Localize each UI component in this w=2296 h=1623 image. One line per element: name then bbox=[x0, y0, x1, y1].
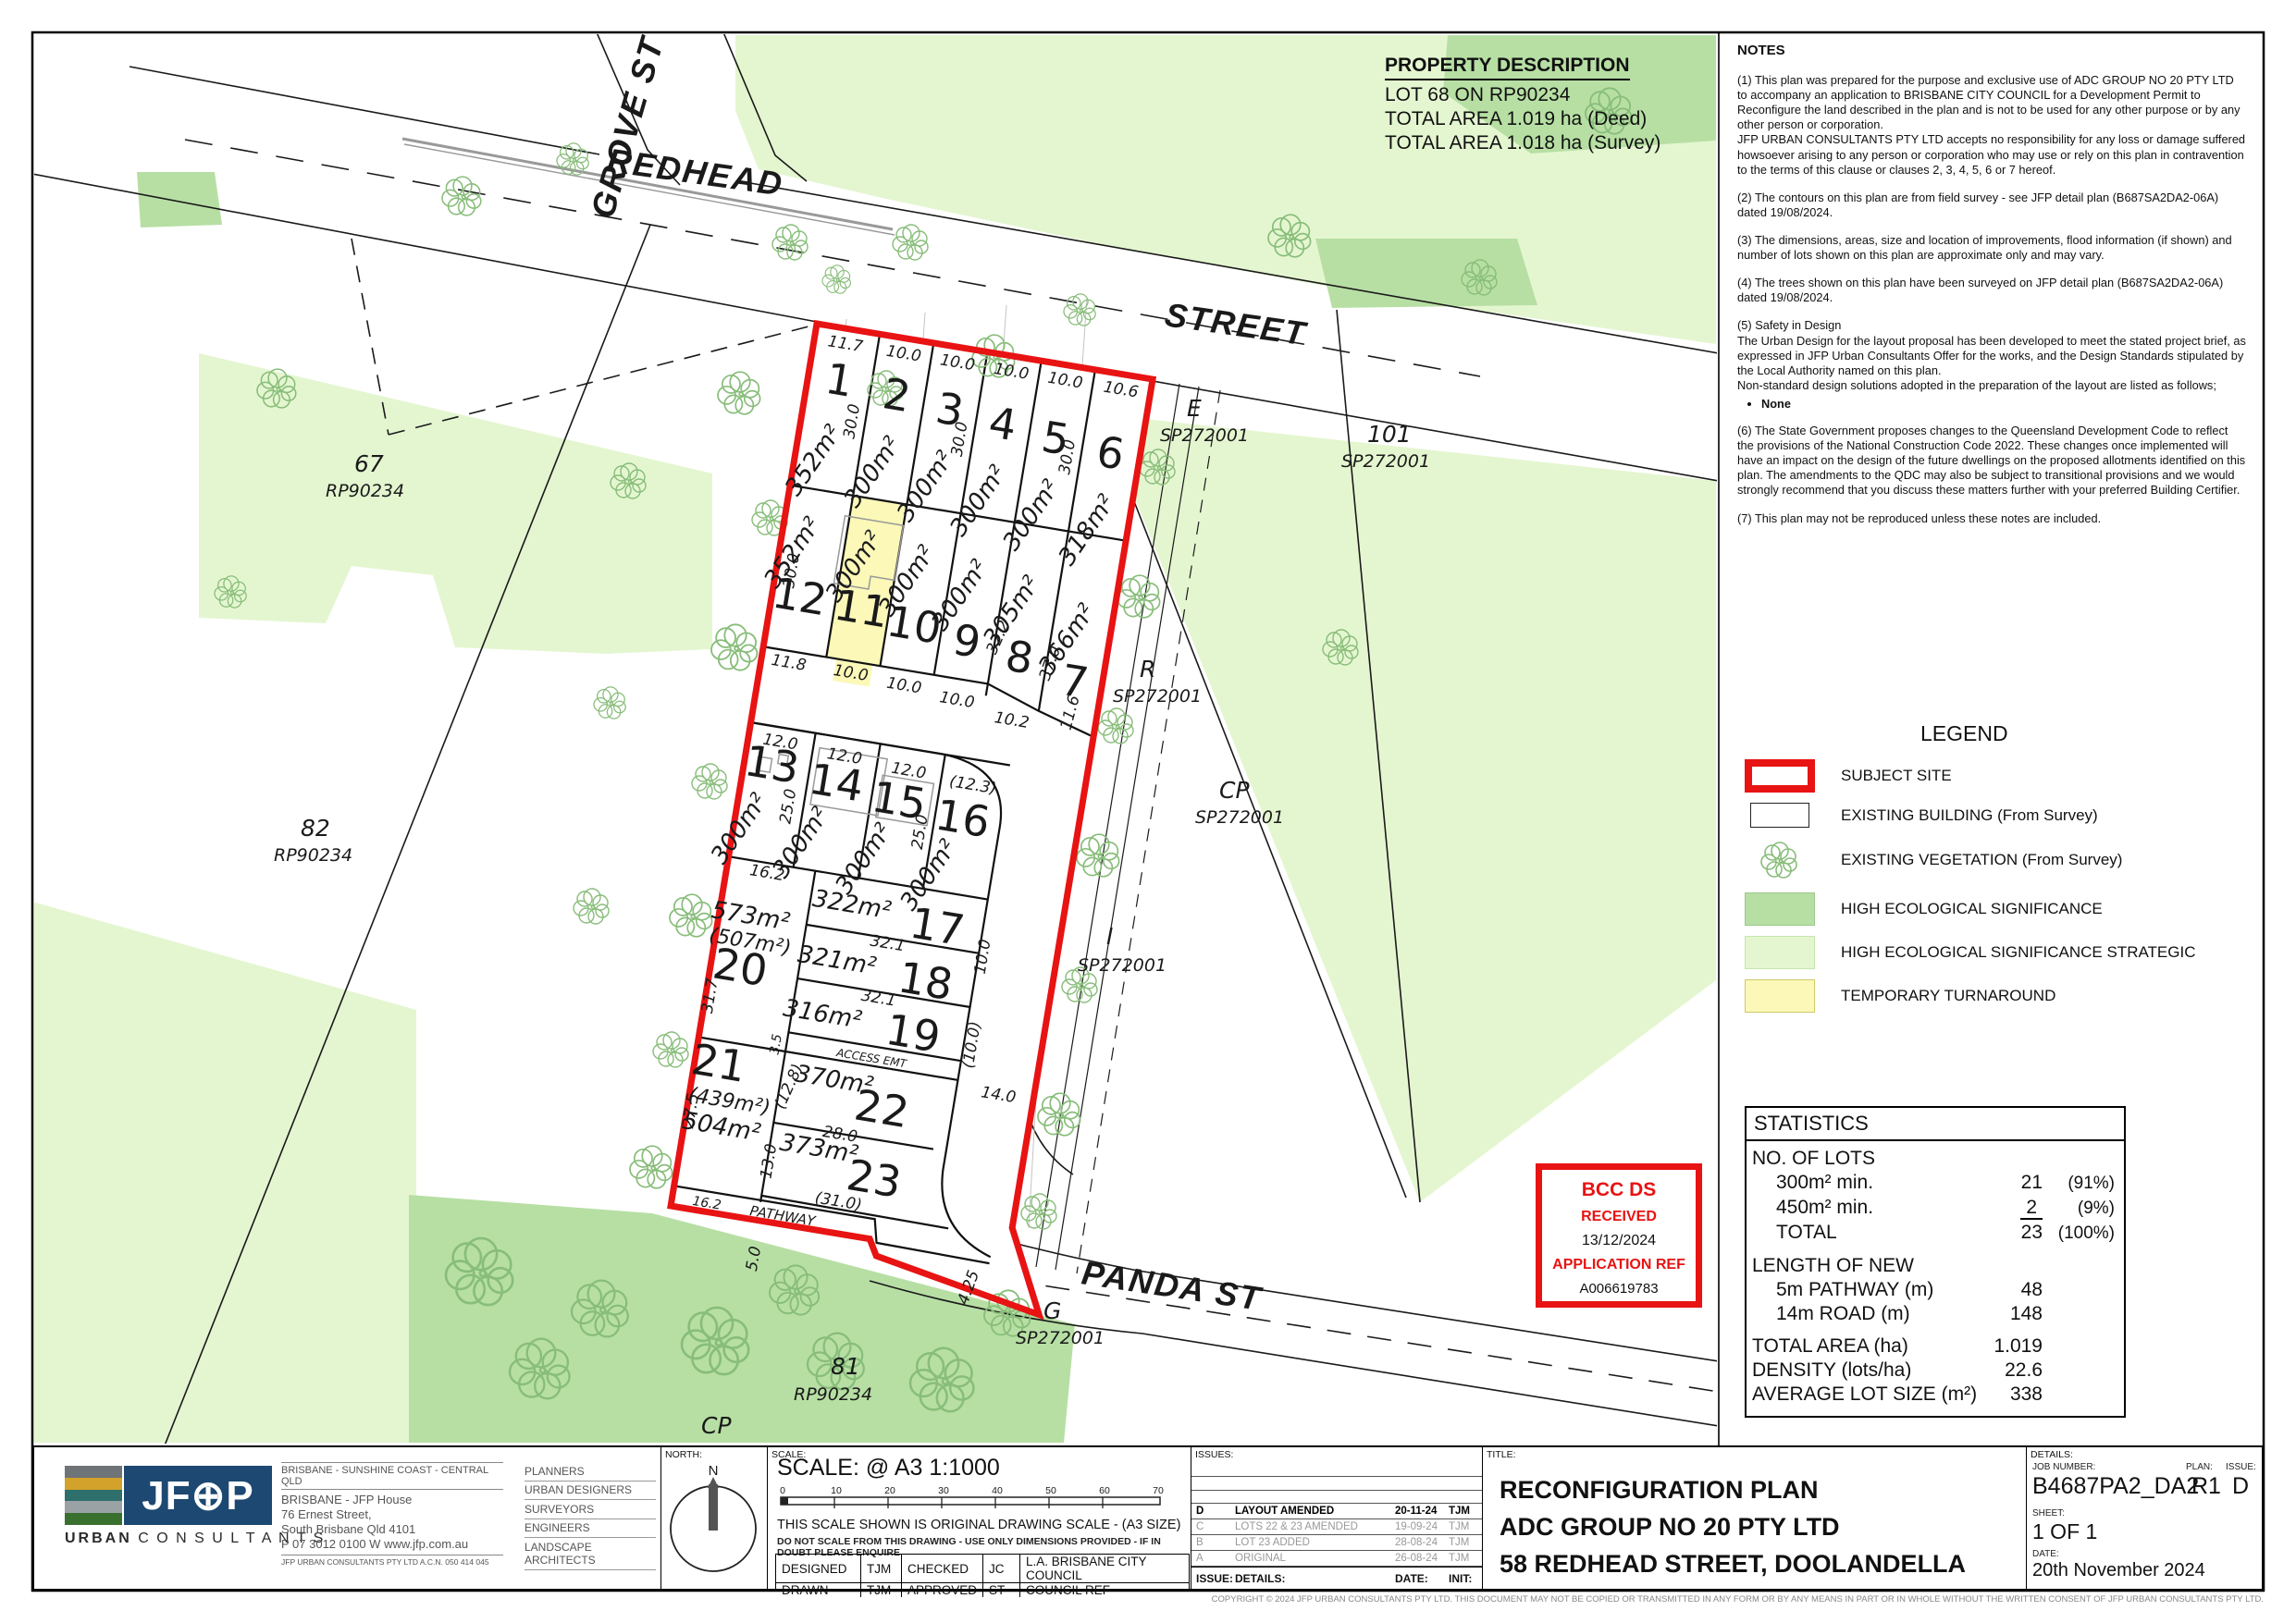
note-4: (4) The trees shown on this plan have be… bbox=[1737, 276, 2246, 305]
statistics-title: STATISTICS bbox=[1747, 1108, 2124, 1141]
credits-table: DESIGNED TJM CHECKED JC L.A. BRISBANE CI… bbox=[775, 1554, 1190, 1592]
stamp-received: RECEIVED bbox=[1542, 1209, 1696, 1225]
stamp-application-ref-label: APPLICATION REF bbox=[1542, 1257, 1696, 1273]
sheet-number: 1 OF 1 bbox=[2032, 1519, 2097, 1544]
property-description: PROPERTY DESCRIPTION LOT 68 ON RP90234 T… bbox=[1385, 54, 1699, 155]
legend-label: SUBJECT SITE bbox=[1841, 767, 1952, 785]
legend-label: EXISTING BUILDING (From Survey) bbox=[1841, 806, 2098, 825]
stat-value: 2 bbox=[2020, 1197, 2043, 1220]
issue-init: TJM bbox=[1449, 1506, 1482, 1517]
scale-note-1: THIS SCALE SHOWN IS ORIGINAL DRAWING SCA… bbox=[777, 1518, 1180, 1532]
issues-section: ISSUES: D LAYOUT AMENDED 20-11-24 TJM C … bbox=[1191, 1447, 1482, 1589]
issue-row: B LOT 23 ADDED 28-08-24 TJM bbox=[1191, 1535, 1482, 1551]
hes-strategic-swatch bbox=[1745, 936, 1815, 969]
stat-percent: (9%) bbox=[2043, 1197, 2115, 1221]
client-name: ADC GROUP NO 20 PTY LTD bbox=[1500, 1508, 2018, 1545]
stat-label: TOTAL AREA (ha) bbox=[1752, 1334, 1989, 1359]
issue-details: LOTS 22 & 23 AMENDED bbox=[1235, 1521, 1395, 1532]
stat-value: 338 bbox=[1989, 1383, 2043, 1407]
parcel-e: E bbox=[1187, 395, 1202, 422]
issue-label: ISSUE: bbox=[2226, 1462, 2256, 1472]
stat-row-area: TOTAL AREA (ha) 1.019 bbox=[1752, 1334, 2115, 1359]
plan-sheet: { "colors":{"red":"#e81313","hes":"#b7df… bbox=[0, 0, 2296, 1623]
parcel-i-plan: SP272001 bbox=[1078, 955, 1167, 976]
parcel-g-plan: SP272001 bbox=[1016, 1328, 1105, 1348]
company-acn: JFP URBAN CONSULTANTS PTY LTD A.C.N. 050… bbox=[281, 1555, 503, 1567]
statistics-panel: STATISTICS NO. OF LOTS 300m² min. 21 (91… bbox=[1745, 1106, 2126, 1418]
jfp-logo: JF⊕P bbox=[124, 1466, 272, 1525]
date-label: DATE: bbox=[2032, 1549, 2059, 1559]
stat-row-total: TOTAL 23 (100%) bbox=[1752, 1221, 2115, 1246]
init-col-label: INIT: bbox=[1449, 1572, 1482, 1585]
issue-date: 28-08-24 bbox=[1395, 1537, 1449, 1548]
parcel-82-plan: RP90234 bbox=[274, 845, 352, 866]
details-header: DETAILS: bbox=[2031, 1449, 2073, 1460]
parcel-cp-plan: SP272001 bbox=[1195, 807, 1284, 828]
property-description-title: PROPERTY DESCRIPTION bbox=[1385, 54, 1630, 80]
issues-header: ISSUES: bbox=[1195, 1449, 1233, 1460]
legend-item-existing-building: EXISTING BUILDING (From Survey) bbox=[1745, 803, 2263, 828]
scale-tick: 50 bbox=[1045, 1485, 1056, 1496]
parcel-cp2: CP bbox=[701, 1412, 732, 1439]
checked-init: JC bbox=[983, 1555, 1020, 1583]
scale-label: SCALE: @ A3 1:1000 bbox=[777, 1455, 1000, 1482]
scale-tick: 60 bbox=[1099, 1485, 1110, 1496]
scale-tick: 30 bbox=[938, 1485, 949, 1496]
stamp-agency: BCC DS bbox=[1542, 1179, 1696, 1201]
title-section: TITLE: RECONFIGURATION PLAN ADC GROUP NO… bbox=[1482, 1447, 2026, 1589]
parcel-82: 82 bbox=[301, 815, 330, 842]
north-n-label: N bbox=[709, 1463, 719, 1479]
stat-row-pathway: 5m PATHWAY (m) 48 bbox=[1752, 1278, 2115, 1302]
parcel-101-plan: SP272001 bbox=[1341, 451, 1430, 472]
stat-label: TOTAL bbox=[1752, 1221, 1989, 1245]
local-authority: L.A. BRISBANE CITY COUNCIL bbox=[1020, 1555, 1189, 1583]
scale-tick: 70 bbox=[1153, 1485, 1164, 1496]
stat-label: DENSITY (lots/ha) bbox=[1752, 1359, 1989, 1383]
plan-title: RECONFIGURATION PLAN bbox=[1500, 1471, 2018, 1508]
company-services: PLANNERS URBAN DESIGNERS SURVEYORS ENGIN… bbox=[525, 1462, 656, 1570]
stat-label: NO. OF LOTS bbox=[1752, 1147, 2115, 1171]
company-office: BRISBANE - JFP House bbox=[281, 1493, 503, 1507]
note-5: (5) Safety in Design The Urban Design fo… bbox=[1737, 318, 2246, 393]
parcel-81: 81 bbox=[831, 1353, 860, 1380]
stat-value: 48 bbox=[1989, 1278, 2043, 1302]
scale-tick: 10 bbox=[831, 1485, 842, 1496]
company-region: BRISBANE - SUNSHINE COAST - CENTRAL QLD bbox=[281, 1462, 503, 1490]
hes-swatch bbox=[1745, 892, 1815, 926]
issue-row: D LAYOUT AMENDED 20-11-24 TJM bbox=[1191, 1504, 1482, 1519]
note-5-list: None bbox=[1761, 397, 2246, 411]
stat-row-density: DENSITY (lots/ha) 22.6 bbox=[1752, 1359, 2115, 1383]
service-surveyors: SURVEYORS bbox=[525, 1500, 656, 1519]
stat-label: LENGTH OF NEW bbox=[1752, 1254, 2115, 1278]
stat-label: 300m² min. bbox=[1752, 1171, 1989, 1195]
stat-percent: (100%) bbox=[2043, 1222, 2115, 1246]
notes-title: NOTES bbox=[1737, 43, 2246, 58]
property-lot: LOT 68 ON RP90234 bbox=[1385, 83, 1699, 107]
street-name-grove: GROVE ST bbox=[583, 31, 671, 222]
stat-row-300: 300m² min. 21 (91%) bbox=[1752, 1171, 2115, 1196]
checked-label: CHECKED bbox=[902, 1555, 983, 1583]
designed-init: TJM bbox=[861, 1555, 902, 1583]
parcel-67-plan: RP90234 bbox=[326, 481, 404, 501]
notes-panel: NOTES (1) This plan was prepared for the… bbox=[1737, 43, 2246, 539]
north-arrow: N bbox=[661, 1447, 765, 1586]
legend-label: TEMPORARY TURNAROUND bbox=[1841, 987, 2055, 1005]
issue-col-label: ISSUE: bbox=[1191, 1572, 1235, 1585]
issue-code: D bbox=[2232, 1473, 2249, 1500]
turnaround-swatch bbox=[1745, 979, 1815, 1013]
job-number-label: JOB NUMBER: bbox=[2032, 1462, 2095, 1472]
details-section: DETAILS: JOB NUMBER: PLAN: ISSUE: B4687P… bbox=[2026, 1447, 2263, 1589]
stat-value: 23 bbox=[1989, 1221, 2043, 1245]
issue-details: ORIGINAL bbox=[1235, 1553, 1395, 1564]
parcel-cp: CP bbox=[1219, 777, 1250, 804]
parcel-g: G bbox=[1043, 1297, 1061, 1324]
stamp-date: 13/12/2024 bbox=[1542, 1233, 1696, 1249]
company-street: 76 Ernest Street, bbox=[281, 1507, 503, 1522]
scale-bar: 0 10 20 30 40 50 60 70 bbox=[777, 1484, 1184, 1516]
note-6: (6) The State Government proposes change… bbox=[1737, 424, 2246, 498]
stat-row-road: 14m ROAD (m) 148 bbox=[1752, 1302, 2115, 1326]
legend-label: EXISTING VEGETATION (From Survey) bbox=[1841, 851, 2122, 869]
street-name-panda: PANDA ST bbox=[1080, 1253, 1265, 1318]
legend-panel: LEGEND SUBJECT SITE EXISTING BUILDING (F… bbox=[1745, 721, 2263, 1023]
company-city: South Brisbane Qld 4101 bbox=[281, 1522, 503, 1537]
lot-number: 21 bbox=[688, 1034, 750, 1092]
service-urban-designers: URBAN DESIGNERS bbox=[525, 1482, 656, 1501]
lot-number: 19 bbox=[883, 1004, 944, 1063]
stat-value: 21 bbox=[1989, 1171, 2043, 1195]
parcel-101: 101 bbox=[1367, 421, 1412, 448]
company-phone: P 07 3012 0100 W www.jfp.com.au bbox=[281, 1537, 503, 1552]
parcel-r: R bbox=[1140, 656, 1155, 682]
title-block: JF⊕P URBAN C O N S U L T A N T S BRISBAN… bbox=[32, 1445, 2264, 1591]
issue-row: C LOTS 22 & 23 AMENDED 19-09-24 TJM bbox=[1191, 1519, 1482, 1535]
issue-date: 19-09-24 bbox=[1395, 1521, 1449, 1532]
subject-site-swatch bbox=[1745, 759, 1815, 793]
scale-tick: 0 bbox=[780, 1485, 785, 1496]
parcel-r-plan: SP272001 bbox=[1113, 686, 1202, 707]
legend-item-turnaround: TEMPORARY TURNAROUND bbox=[1745, 979, 2263, 1013]
existing-building-swatch bbox=[1750, 803, 1809, 828]
issue-date: 20-11-24 bbox=[1395, 1506, 1449, 1517]
stat-label: 450m² min. bbox=[1752, 1196, 1989, 1220]
note-7: (7) This plan may not be reproduced unle… bbox=[1737, 511, 2246, 526]
details-col-label: DETAILS: bbox=[1235, 1572, 1395, 1585]
plan-label: PLAN: bbox=[2186, 1462, 2213, 1472]
logo-stripes bbox=[65, 1466, 122, 1525]
legend-item-subject-site: SUBJECT SITE bbox=[1745, 759, 2263, 793]
issue-code: B bbox=[1191, 1537, 1235, 1548]
sheet-label: SHEET: bbox=[2032, 1508, 2065, 1518]
issue-row: A ORIGINAL 26-08-24 TJM bbox=[1191, 1551, 1482, 1567]
company-address: BRISBANE - SUNSHINE COAST - CENTRAL QLD … bbox=[281, 1462, 503, 1567]
issue-details: LAYOUT AMENDED bbox=[1235, 1506, 1395, 1517]
date-col-label: DATE: bbox=[1395, 1572, 1449, 1585]
stat-value: 1.019 bbox=[1989, 1334, 2043, 1359]
title-header: TITLE: bbox=[1487, 1449, 1516, 1460]
north-header: NORTH: bbox=[665, 1449, 702, 1460]
issue-code: D bbox=[1191, 1506, 1235, 1517]
scale-section: SCALE: SCALE: @ A3 1:1000 0 10 20 30 40 … bbox=[767, 1447, 1191, 1589]
note-1: (1) This plan was prepared for the purpo… bbox=[1737, 73, 2246, 178]
designed-label: DESIGNED bbox=[776, 1555, 861, 1583]
legend-item-hes-strategic: HIGH ECOLOGICAL SIGNIFICANCE STRATEGIC bbox=[1745, 936, 2263, 969]
street-name-street: STREET bbox=[1163, 295, 1310, 352]
copyright-line: COPYRIGHT © 2024 JFP URBAN CONSULTANTS P… bbox=[833, 1594, 2264, 1605]
issue-code: A bbox=[1191, 1553, 1235, 1564]
legend-item-existing-vegetation: EXISTING VEGETATION (From Survey) bbox=[1745, 838, 2263, 882]
issue-date: 26-08-24 bbox=[1395, 1553, 1449, 1564]
issue-date: 20th November 2024 bbox=[2032, 1560, 2205, 1581]
property-area-deed: TOTAL AREA 1.019 ha (Deed) bbox=[1385, 107, 1699, 131]
site-address: 58 REDHEAD STREET, DOOLANDELLA bbox=[1500, 1545, 2018, 1582]
jfp-logo-text: JF⊕P bbox=[142, 1472, 254, 1519]
note-5-bullet: None bbox=[1761, 397, 2246, 411]
urban-word: URBAN bbox=[65, 1531, 132, 1546]
parcel-81-plan: RP90234 bbox=[794, 1384, 872, 1405]
service-landscape-architects: LANDSCAPE ARCHITECTS bbox=[525, 1538, 656, 1570]
stat-row-avg: AVERAGE LOT SIZE (m²) 338 bbox=[1752, 1383, 2115, 1407]
issue-init: TJM bbox=[1449, 1521, 1482, 1532]
note-2: (2) The contours on this plan are from f… bbox=[1737, 191, 2246, 220]
stat-value: 22.6 bbox=[1989, 1359, 2043, 1383]
stat-percent: (91%) bbox=[2043, 1172, 2115, 1196]
stat-label: AVERAGE LOT SIZE (m²) bbox=[1752, 1383, 1989, 1407]
legend-label: HIGH ECOLOGICAL SIGNIFICANCE STRATEGIC bbox=[1841, 943, 2196, 962]
parcel-i: I bbox=[1106, 923, 1113, 950]
stat-value: 148 bbox=[1989, 1302, 2043, 1326]
stat-label: 5m PATHWAY (m) bbox=[1752, 1278, 1989, 1302]
job-number: B4687PA2_DA2 bbox=[2032, 1473, 2199, 1500]
service-planners: PLANNERS bbox=[525, 1462, 656, 1482]
parcel-e-plan: SP272001 bbox=[1160, 425, 1249, 446]
issues-footer: ISSUE: DETAILS: DATE: INIT: bbox=[1191, 1567, 1482, 1589]
legend-item-hes: HIGH ECOLOGICAL SIGNIFICANCE bbox=[1745, 892, 2263, 926]
issue-init: TJM bbox=[1449, 1537, 1482, 1548]
parcel-67: 67 bbox=[354, 450, 384, 477]
issue-code: C bbox=[1191, 1521, 1235, 1532]
legend-label: HIGH ECOLOGICAL SIGNIFICANCE bbox=[1841, 900, 2103, 918]
issue-init: TJM bbox=[1449, 1553, 1482, 1564]
north-section: NORTH: N bbox=[660, 1447, 767, 1589]
service-engineers: ENGINEERS bbox=[525, 1519, 656, 1539]
stamp-application-ref: A006619783 bbox=[1542, 1281, 1696, 1297]
note-3: (3) The dimensions, areas, size and loca… bbox=[1737, 233, 2246, 263]
legend-title: LEGEND bbox=[1920, 721, 2263, 746]
company-section: JF⊕P URBAN C O N S U L T A N T S BRISBAN… bbox=[34, 1447, 660, 1589]
stat-label: 14m ROAD (m) bbox=[1752, 1302, 1989, 1326]
scale-tick: 40 bbox=[992, 1485, 1003, 1496]
scale-tick: 20 bbox=[884, 1485, 895, 1496]
lot-number: 18 bbox=[895, 952, 957, 1010]
property-area-survey: TOTAL AREA 1.018 ha (Survey) bbox=[1385, 131, 1699, 155]
vegetation-icon bbox=[1745, 838, 1815, 882]
issue-details: LOT 23 ADDED bbox=[1235, 1537, 1395, 1548]
bcc-received-stamp: BCC DS RECEIVED 13/12/2024 APPLICATION R… bbox=[1536, 1163, 1702, 1308]
stat-row-450: 450m² min. 2 (9%) bbox=[1752, 1196, 2115, 1221]
plan-revision: R1 bbox=[2191, 1473, 2221, 1500]
